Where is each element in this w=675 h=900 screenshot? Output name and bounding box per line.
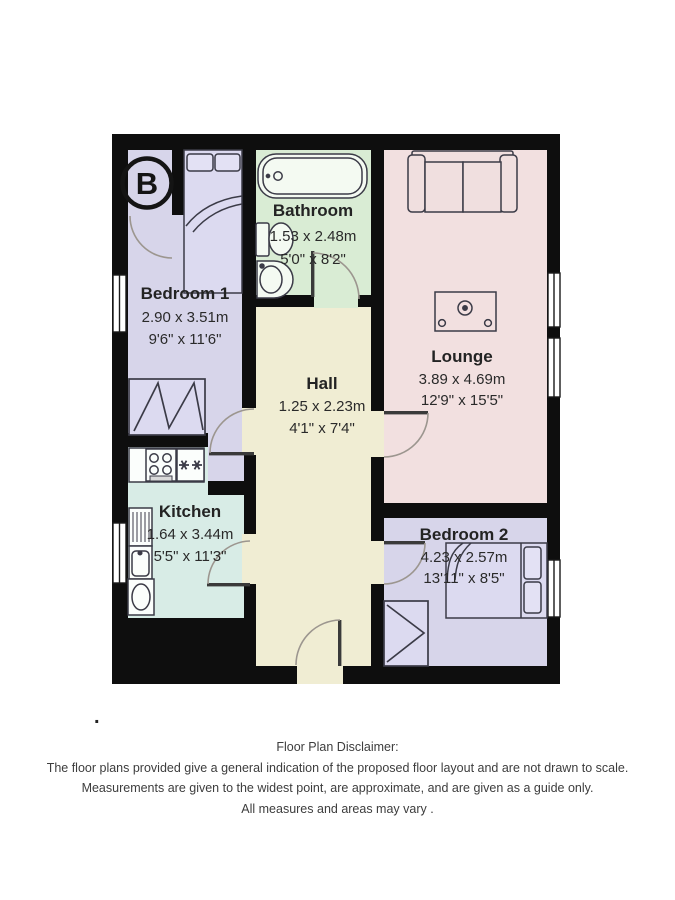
room-metric-bedroom1: 2.90 x 3.51m — [142, 309, 229, 326]
room-imperial-lounge: 12'9" x 15'5" — [421, 392, 503, 409]
bathroom-door-opening — [314, 294, 358, 308]
disclaimer-line-2: Measurements are given to the widest poi… — [0, 778, 675, 799]
kitchen-door-leaf — [207, 583, 250, 586]
room-metric-lounge: 3.89 x 4.69m — [419, 371, 506, 388]
room-imperial-bedroom1: 9'6" x 11'6" — [149, 331, 222, 348]
logo-letter: B — [136, 166, 158, 201]
bed-icon-bedroom1 — [184, 150, 242, 293]
room-label-bedroom2: Bedroom 2 — [420, 525, 509, 544]
room-label-bedroom1: Bedroom 1 — [141, 284, 230, 303]
room-label-kitchen: Kitchen — [159, 502, 221, 521]
window-kitchen — [113, 523, 126, 583]
room-metric-hall: 1.25 x 2.23m — [279, 398, 366, 415]
disclaimer-title: Floor Plan Disclaimer: — [0, 737, 675, 758]
oven-icon — [128, 579, 154, 615]
stray-mark: . — [94, 706, 100, 729]
room-imperial-hall: 4'1" x 7'4" — [289, 420, 355, 437]
room-label-hall: Hall — [306, 374, 337, 393]
room-metric-kitchen: 1.64 x 3.44m — [147, 526, 234, 543]
window-bedroom2 — [548, 560, 560, 617]
room-label-bathroom: Bathroom — [273, 201, 353, 220]
kitchen-counter-icon — [129, 448, 204, 482]
room-imperial-bathroom: 5'0" x 8'2" — [280, 251, 346, 268]
bedroom1-nook-floor — [208, 433, 244, 481]
room-label-lounge: Lounge — [431, 347, 492, 366]
kitchen-sink-icon — [129, 508, 152, 579]
bedroom2-door-opening — [371, 541, 384, 584]
bedroom1-door-opening — [242, 408, 256, 455]
disclaimer-line-1: The floor plans provided give a general … — [0, 758, 675, 779]
window-bedroom1 — [113, 275, 126, 332]
entrance-door-leaf — [338, 620, 341, 666]
coffee-table-icon — [435, 292, 496, 331]
bedroom1-door-leaf — [209, 452, 254, 455]
floor-plan-page: B — [0, 0, 675, 900]
lounge-door-opening — [371, 411, 384, 457]
room-imperial-bedroom2: 13'11" x 8'5" — [423, 570, 504, 587]
bedroom1-wall-stub — [172, 150, 184, 215]
floor-plan: B — [0, 0, 675, 730]
sofa-icon — [408, 151, 517, 212]
room-metric-bathroom: 1.53 x 2.48m — [270, 228, 357, 245]
wardrobe-icon-bedroom1 — [129, 379, 205, 435]
disclaimer-block: Floor Plan Disclaimer: The floor plans p… — [0, 737, 675, 819]
wardrobe-icon-bedroom2 — [384, 601, 428, 666]
room-metric-bedroom2: 4.23 x 2.57m — [421, 549, 508, 566]
hall-floor — [256, 307, 371, 666]
bathtub-icon — [258, 154, 367, 198]
lounge-door-leaf — [384, 411, 428, 414]
window-lounge-2 — [548, 338, 560, 397]
room-imperial-kitchen: 5'5" x 11'3" — [154, 548, 227, 565]
window-lounge-1 — [548, 273, 560, 327]
disclaimer-line-3: All measures and areas may vary . — [0, 799, 675, 820]
entrance-door-opening — [297, 666, 343, 684]
